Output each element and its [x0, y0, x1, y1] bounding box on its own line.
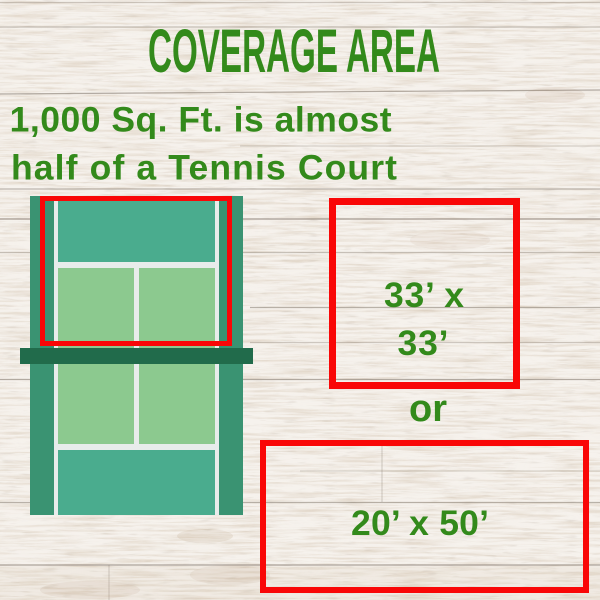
- svg-text:or: or: [409, 388, 447, 430]
- svg-text:COVERAGE AREA: COVERAGE AREA: [148, 17, 440, 85]
- svg-text:half of a Tennis Court: half of a Tennis Court: [11, 148, 397, 188]
- svg-text:33’ x: 33’ x: [384, 275, 464, 315]
- svg-text:1,000 Sq. Ft. is almost: 1,000 Sq. Ft. is almost: [10, 100, 392, 140]
- svg-text:33’: 33’: [398, 323, 449, 363]
- svg-text:20’ x 50’: 20’ x 50’: [351, 503, 489, 543]
